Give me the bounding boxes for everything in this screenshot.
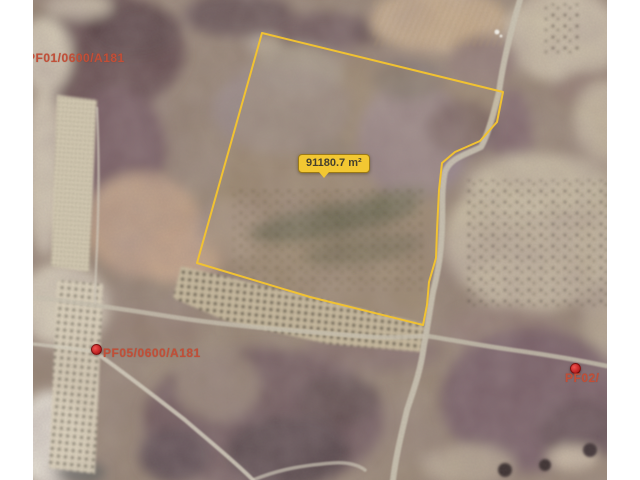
- red-location-dot-icon[interactable]: [91, 344, 102, 355]
- parcel-id-label-pf05: PF05/0600/A181: [103, 347, 201, 359]
- app-frame: PF01/0600/A181 PF05/0600/A181 PF02/ 9118…: [0, 0, 640, 480]
- area-measurement-label: 91180.7 m²: [298, 154, 370, 173]
- parcel-id-label-pf02: PF02/: [565, 372, 600, 384]
- satellite-map-viewport[interactable]: PF01/0600/A181 PF05/0600/A181 PF02/ 9118…: [33, 0, 607, 480]
- satellite-imagery: [33, 0, 607, 480]
- parcel-id-label-pf01: PF01/0600/A181: [33, 52, 125, 64]
